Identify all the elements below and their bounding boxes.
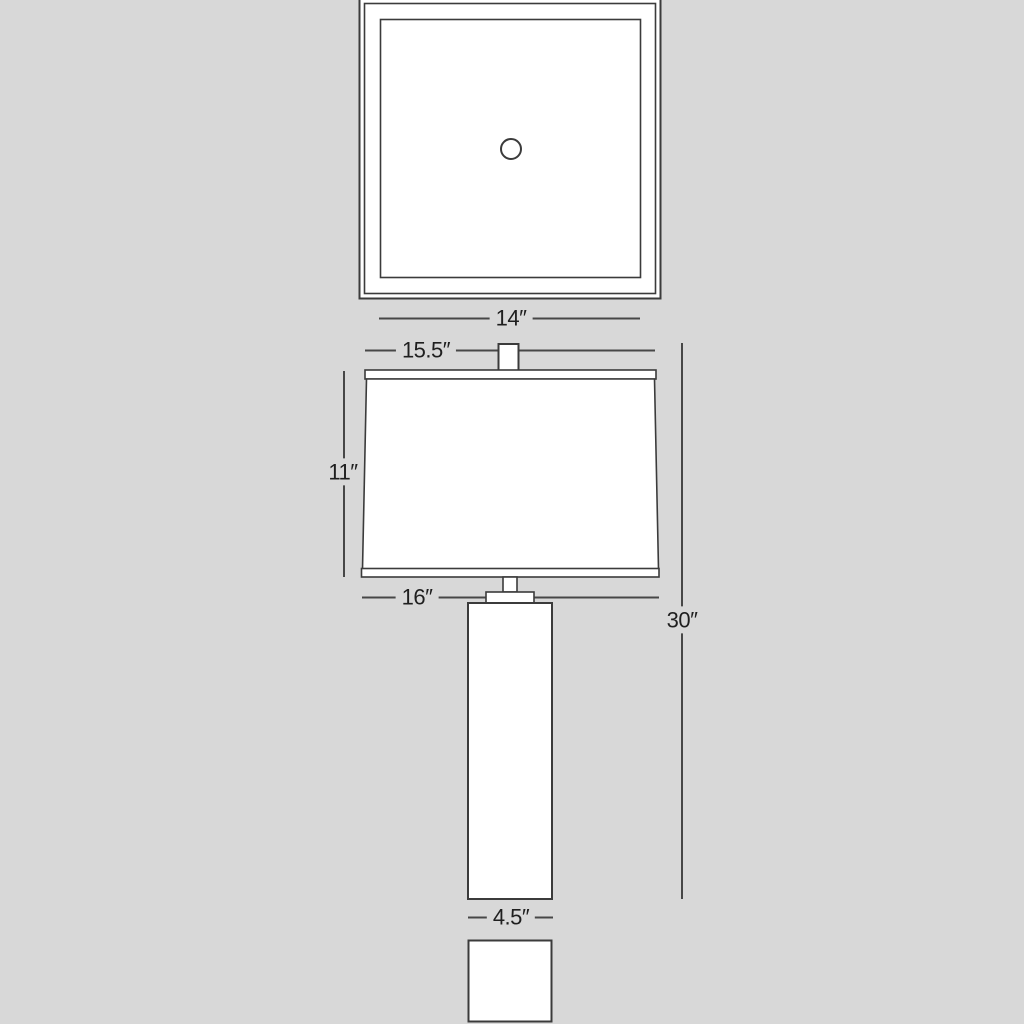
neck-stem [503, 577, 517, 592]
diagram-canvas [0, 0, 1024, 1024]
finial-hole-circle [501, 139, 521, 159]
shade-top-rim [365, 370, 656, 379]
lamp-dimension-drawing: 14″ 15.5″ 11″ 16″ 30″ 4.5″ [0, 0, 1024, 1024]
dimension-label-11: 11″ [322, 458, 363, 485]
base-square [469, 941, 552, 1022]
lamp-column [468, 603, 552, 899]
dimension-label-4-5: 4.5″ [487, 903, 535, 930]
finial-neck [499, 344, 519, 371]
dimension-label-15-5: 15.5″ [396, 336, 456, 363]
vase-cap [486, 592, 534, 603]
dimension-label-30: 30″ [661, 606, 704, 633]
shade-top-view [360, 0, 661, 299]
dimension-label-16: 16″ [396, 583, 439, 610]
shade-bottom-rim [362, 569, 660, 578]
shade-body [363, 379, 659, 569]
dimension-label-14: 14″ [490, 304, 533, 331]
